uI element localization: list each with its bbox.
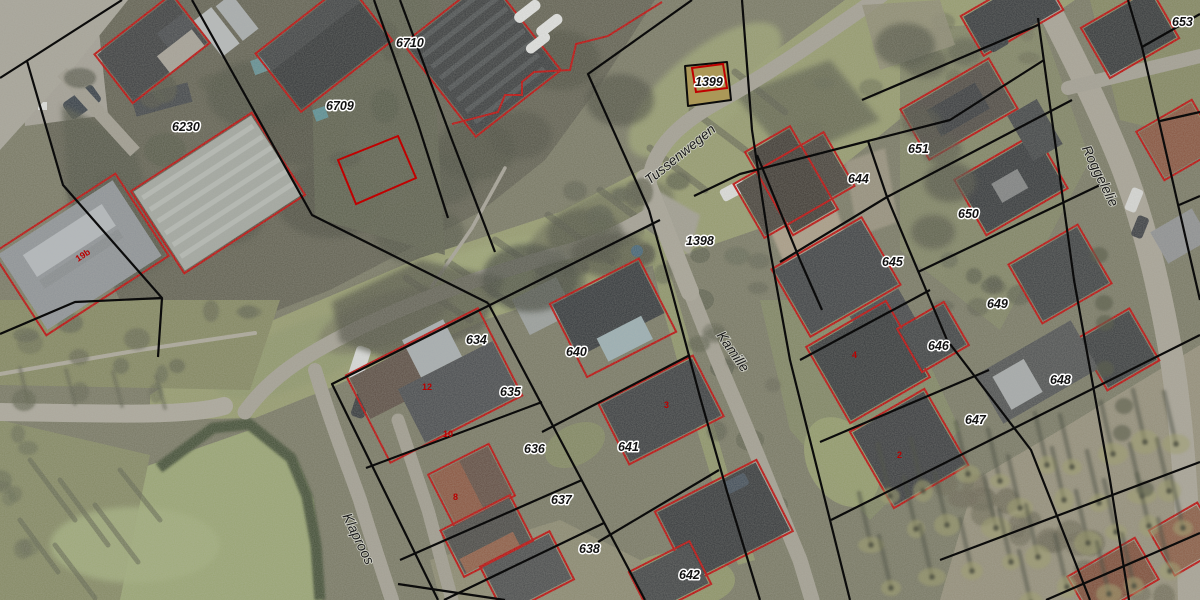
svg-text:636: 636 xyxy=(524,442,546,456)
svg-text:640: 640 xyxy=(566,345,587,359)
svg-text:8: 8 xyxy=(453,492,458,502)
svg-text:2: 2 xyxy=(897,450,902,460)
svg-text:637: 637 xyxy=(551,493,573,507)
svg-text:3: 3 xyxy=(664,400,669,410)
svg-text:653: 653 xyxy=(1172,15,1193,29)
svg-text:650: 650 xyxy=(958,207,979,221)
svg-text:4: 4 xyxy=(852,350,857,360)
svg-text:649: 649 xyxy=(987,297,1008,311)
svg-text:10: 10 xyxy=(443,429,453,439)
svg-text:12: 12 xyxy=(422,382,432,392)
svg-text:641: 641 xyxy=(618,440,639,454)
svg-text:651: 651 xyxy=(908,142,929,156)
svg-text:642: 642 xyxy=(679,568,700,582)
svg-text:638: 638 xyxy=(579,542,600,556)
svg-text:1399: 1399 xyxy=(695,75,723,89)
svg-text:1398: 1398 xyxy=(686,234,714,248)
svg-text:635: 635 xyxy=(500,385,522,399)
svg-text:648: 648 xyxy=(1050,373,1071,387)
svg-text:6230: 6230 xyxy=(172,120,200,134)
svg-text:644: 644 xyxy=(848,172,869,186)
svg-text:634: 634 xyxy=(466,333,487,347)
svg-text:647: 647 xyxy=(965,413,987,427)
svg-text:6709: 6709 xyxy=(326,99,354,113)
svg-text:645: 645 xyxy=(882,255,904,269)
svg-text:6710: 6710 xyxy=(396,36,424,50)
svg-text:646: 646 xyxy=(928,339,950,353)
